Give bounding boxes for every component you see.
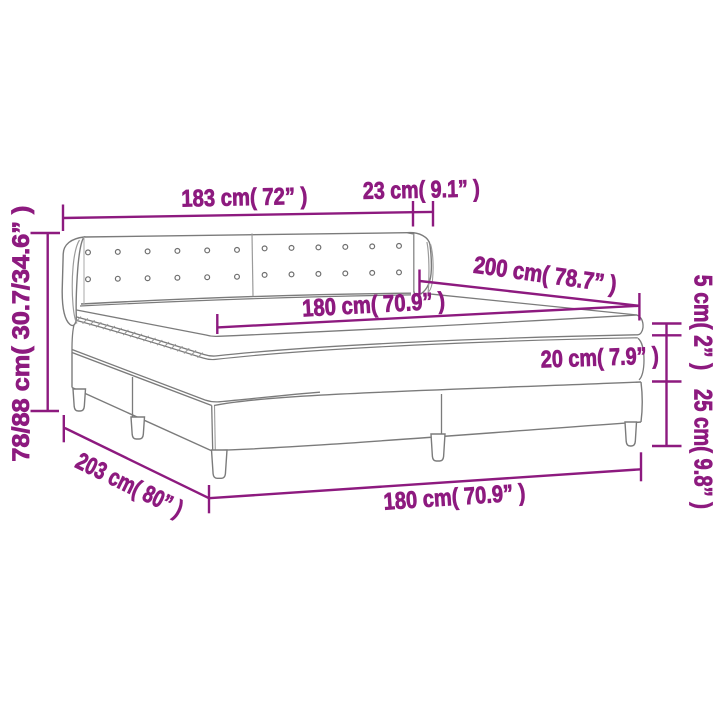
svg-text:23 cm( 9.1” ): 23 cm( 9.1” ) <box>363 175 481 204</box>
svg-text:183 cm( 72” ): 183 cm( 72” ) <box>181 183 308 213</box>
svg-text:20 cm( 7.9” ): 20 cm( 7.9” ) <box>540 342 659 373</box>
svg-text:5 cm( 2” ): 5 cm( 2” ) <box>689 275 717 371</box>
svg-text:25 cm( 9.8” ): 25 cm( 9.8” ) <box>689 389 717 509</box>
svg-text:78/88 cm( 30.7/34.6” ): 78/88 cm( 30.7/34.6” ) <box>8 206 35 462</box>
